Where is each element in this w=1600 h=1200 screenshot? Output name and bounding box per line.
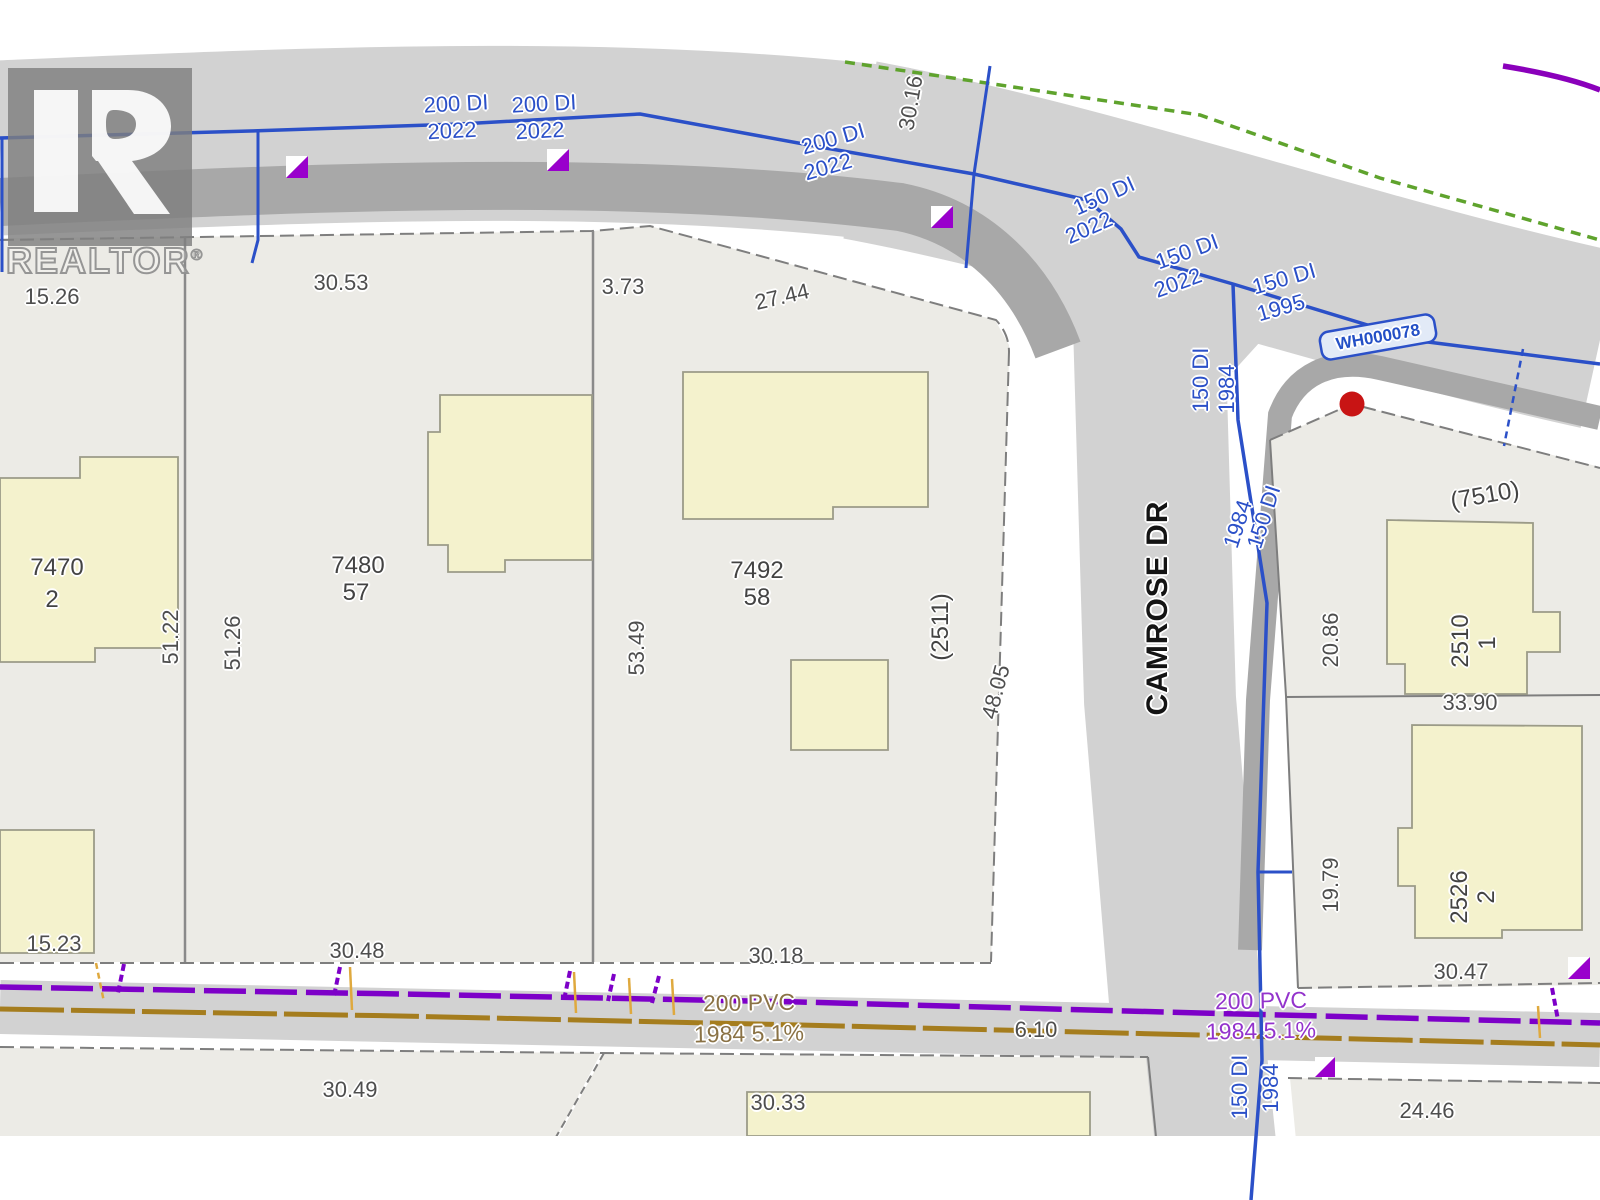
valve-icon [1315, 1057, 1335, 1077]
building-2526 [1398, 725, 1582, 938]
parcel-2446-area [1290, 1078, 1600, 1140]
building-7492-shed [791, 660, 888, 750]
parcel-7480-area [185, 231, 592, 962]
parcel-southwest-area [0, 1048, 601, 1136]
building-7480 [428, 395, 592, 572]
valve-icon [931, 206, 953, 228]
map-geometry [0, 0, 1600, 1200]
parcel-utility-map[interactable]: 15.2630.533.7327.4430.1651.2251.2653.494… [0, 0, 1600, 1200]
parcel-7492-area [592, 226, 1009, 962]
valve-icon [547, 149, 569, 171]
building-7492 [683, 372, 928, 519]
valve-icon [1568, 957, 1590, 979]
realtor-logo [8, 68, 192, 246]
valve-icon [286, 156, 308, 178]
building-7470-south [0, 830, 94, 953]
realtor-wordmark-text: REALTOR [6, 240, 191, 281]
bottom-white-band [0, 1136, 1600, 1200]
realtor-wordmark: REALTOR® [6, 240, 236, 282]
building-3033 [747, 1092, 1090, 1136]
realtor-r-icon [8, 68, 192, 246]
red-corner-marker [1340, 392, 1365, 417]
building-7470 [0, 457, 178, 662]
registered-mark: ® [191, 247, 205, 264]
purple-corner-line [1503, 66, 1600, 90]
